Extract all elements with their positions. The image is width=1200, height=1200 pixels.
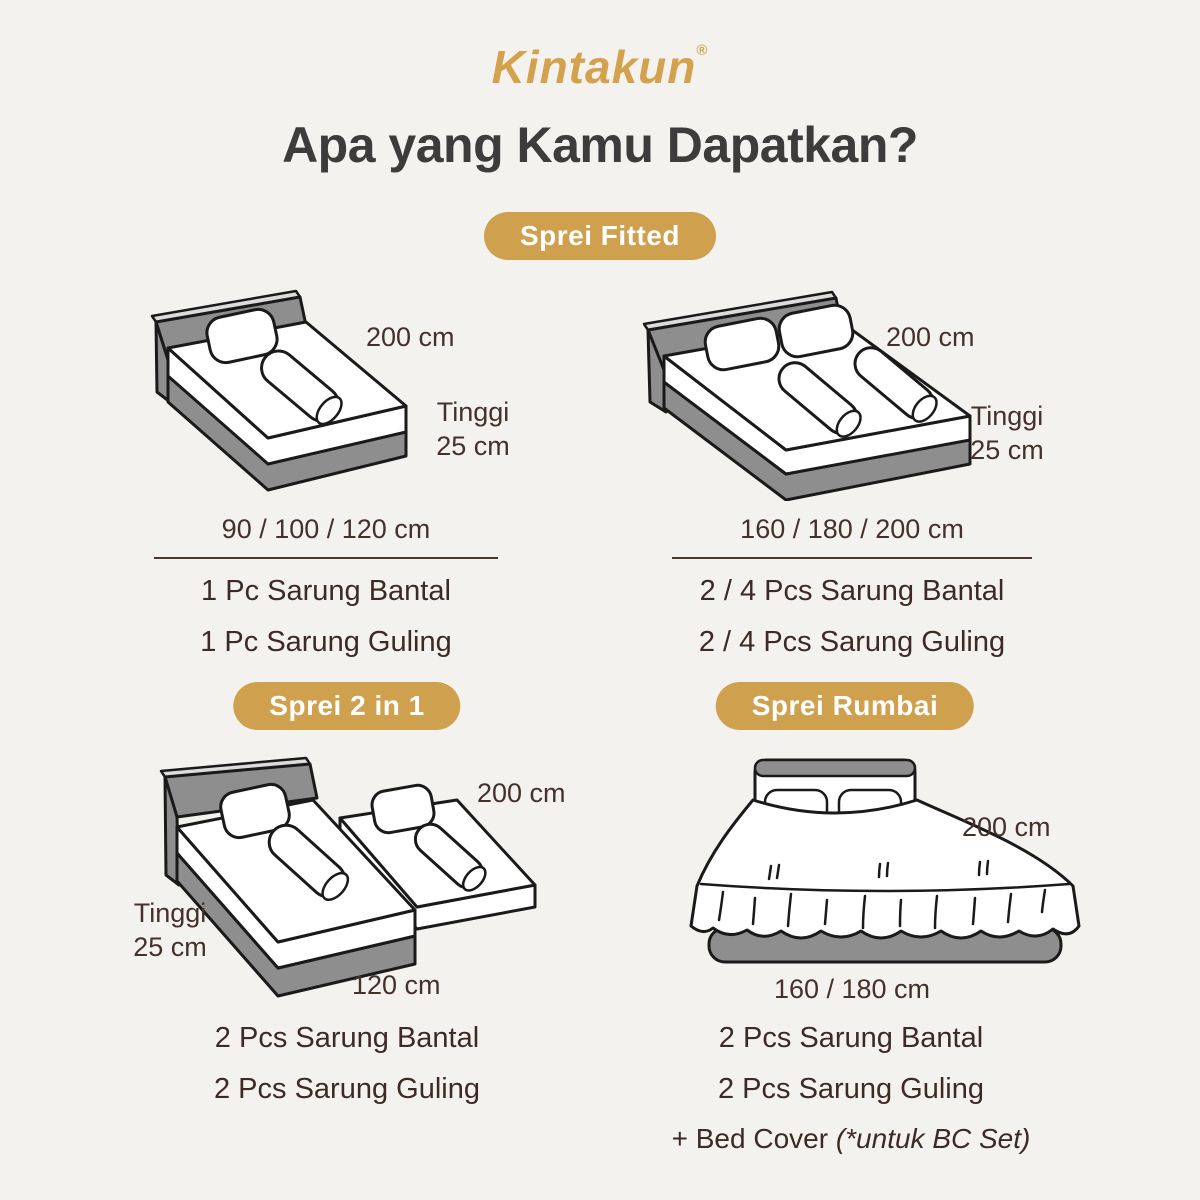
bed-illustration-fitted-double [640,286,1045,501]
label-length-fitted-double: 200 cm [886,322,975,353]
included-item: 2 Pcs Sarung Bantal [618,1022,1084,1055]
spec-fitted-single: 90 / 100 / 120 cm 1 Pc Sarung Bantal 1 P… [140,514,512,659]
label-height-line1: Tinggi [115,897,225,931]
label-length-rumbai: 200 cm [962,812,1051,843]
label-length-fitted-single: 200 cm [366,322,455,353]
size-options: 160 / 180 / 200 cm [658,514,1046,545]
bed-illustration-rumbai [675,752,1095,970]
badge-sprei-rumbai: Sprei Rumbai [716,682,974,730]
size-options: 90 / 100 / 120 cm [140,514,512,545]
label-height-line1: Tinggi [418,396,528,430]
bed-illustration-fitted-single [148,286,500,498]
included-item: 2 Pcs Sarung Guling [135,1073,559,1106]
label-height-fitted-double: Tinggi 25 cm [952,400,1062,468]
infographic-canvas: Kintakun® Apa yang Kamu Dapatkan? Sprei … [0,0,1200,1200]
label-width-2in1: 120 cm [352,970,441,1001]
divider-line [672,557,1032,559]
label-height-line2: 25 cm [952,434,1062,468]
brand-name: Kintakun [492,41,697,93]
spec-fitted-double: 160 / 180 / 200 cm 2 / 4 Pcs Sarung Bant… [658,514,1046,659]
included-item: 2 Pcs Sarung Guling [618,1073,1084,1106]
label-width-rumbai: 160 / 180 cm [702,974,1002,1005]
bedcover-note: (*untuk BC Set) [836,1123,1031,1154]
included-item: 1 Pc Sarung Guling [140,626,512,659]
included-item: 2 Pcs Sarung Bantal [135,1022,559,1055]
spec-2in1: 2 Pcs Sarung Bantal 2 Pcs Sarung Guling [135,1022,559,1106]
included-item: 2 / 4 Pcs Sarung Bantal [658,575,1046,608]
registered-mark: ® [696,42,708,59]
label-height-2in1: Tinggi 25 cm [115,897,225,965]
page-title: Apa yang Kamu Dapatkan? [0,116,1200,174]
bedcover-text: + Bed Cover [672,1123,836,1154]
brand-logo: Kintakun® [0,40,1200,94]
label-height-line1: Tinggi [952,400,1062,434]
spec-rumbai: 2 Pcs Sarung Bantal 2 Pcs Sarung Guling … [618,1022,1084,1155]
label-height-line2: 25 cm [115,931,225,965]
label-length-2in1: 200 cm [477,778,566,809]
included-item: 2 / 4 Pcs Sarung Guling [658,626,1046,659]
included-item-bedcover: + Bed Cover (*untuk BC Set) [618,1123,1084,1155]
included-item: 1 Pc Sarung Bantal [140,575,512,608]
label-height-line2: 25 cm [418,430,528,464]
label-height-fitted-single: Tinggi 25 cm [418,396,528,464]
badge-sprei-2in1: Sprei 2 in 1 [233,682,460,730]
badge-sprei-fitted: Sprei Fitted [484,212,716,260]
divider-line [154,557,498,559]
